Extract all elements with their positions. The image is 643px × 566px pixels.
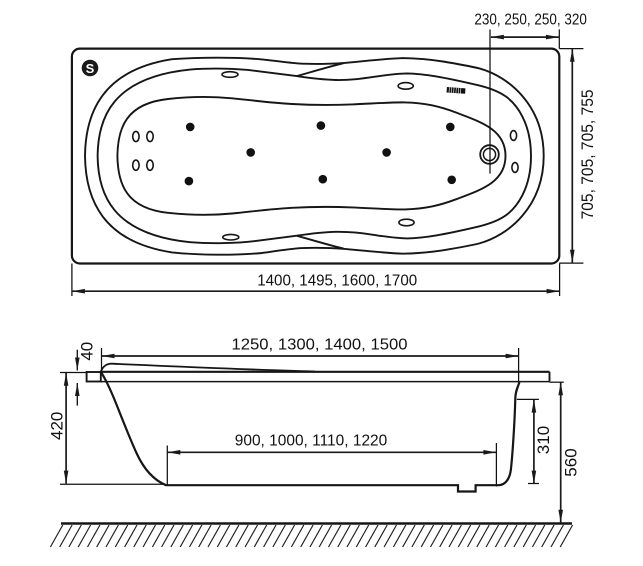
svg-text:900, 1000, 1110, 1220: 900, 1000, 1110, 1220 xyxy=(235,432,388,449)
svg-text:420: 420 xyxy=(48,412,67,440)
svg-text:1400, 1495, 1600, 1700: 1400, 1495, 1600, 1700 xyxy=(257,273,417,290)
svg-text:S: S xyxy=(86,61,95,76)
svg-text:40: 40 xyxy=(78,342,97,361)
svg-text:705, 705, 705, 755: 705, 705, 705, 755 xyxy=(578,89,597,219)
svg-text:560: 560 xyxy=(562,448,581,476)
svg-text:230, 250, 250, 320: 230, 250, 250, 320 xyxy=(474,12,587,29)
svg-text:310: 310 xyxy=(534,426,553,454)
svg-text:1250, 1300, 1400, 1500: 1250, 1300, 1400, 1500 xyxy=(232,336,408,353)
